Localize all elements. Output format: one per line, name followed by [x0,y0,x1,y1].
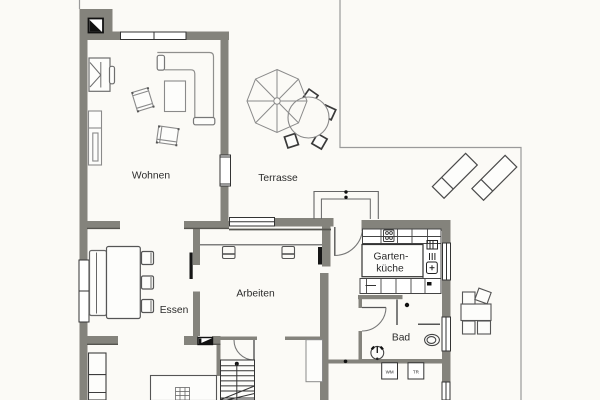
svg-text:küche: küche [376,264,404,275]
svg-text:Wohnen: Wohnen [132,171,170,182]
svg-text:Bad: Bad [392,333,411,344]
svg-text:Terrasse: Terrasse [258,173,298,184]
svg-text:TR: TR [413,369,420,374]
svg-text:WM: WM [386,369,394,374]
svg-text:Garten-: Garten- [374,252,409,263]
svg-text:Arbeiten: Arbeiten [236,289,275,300]
svg-text:Essen: Essen [160,305,189,316]
